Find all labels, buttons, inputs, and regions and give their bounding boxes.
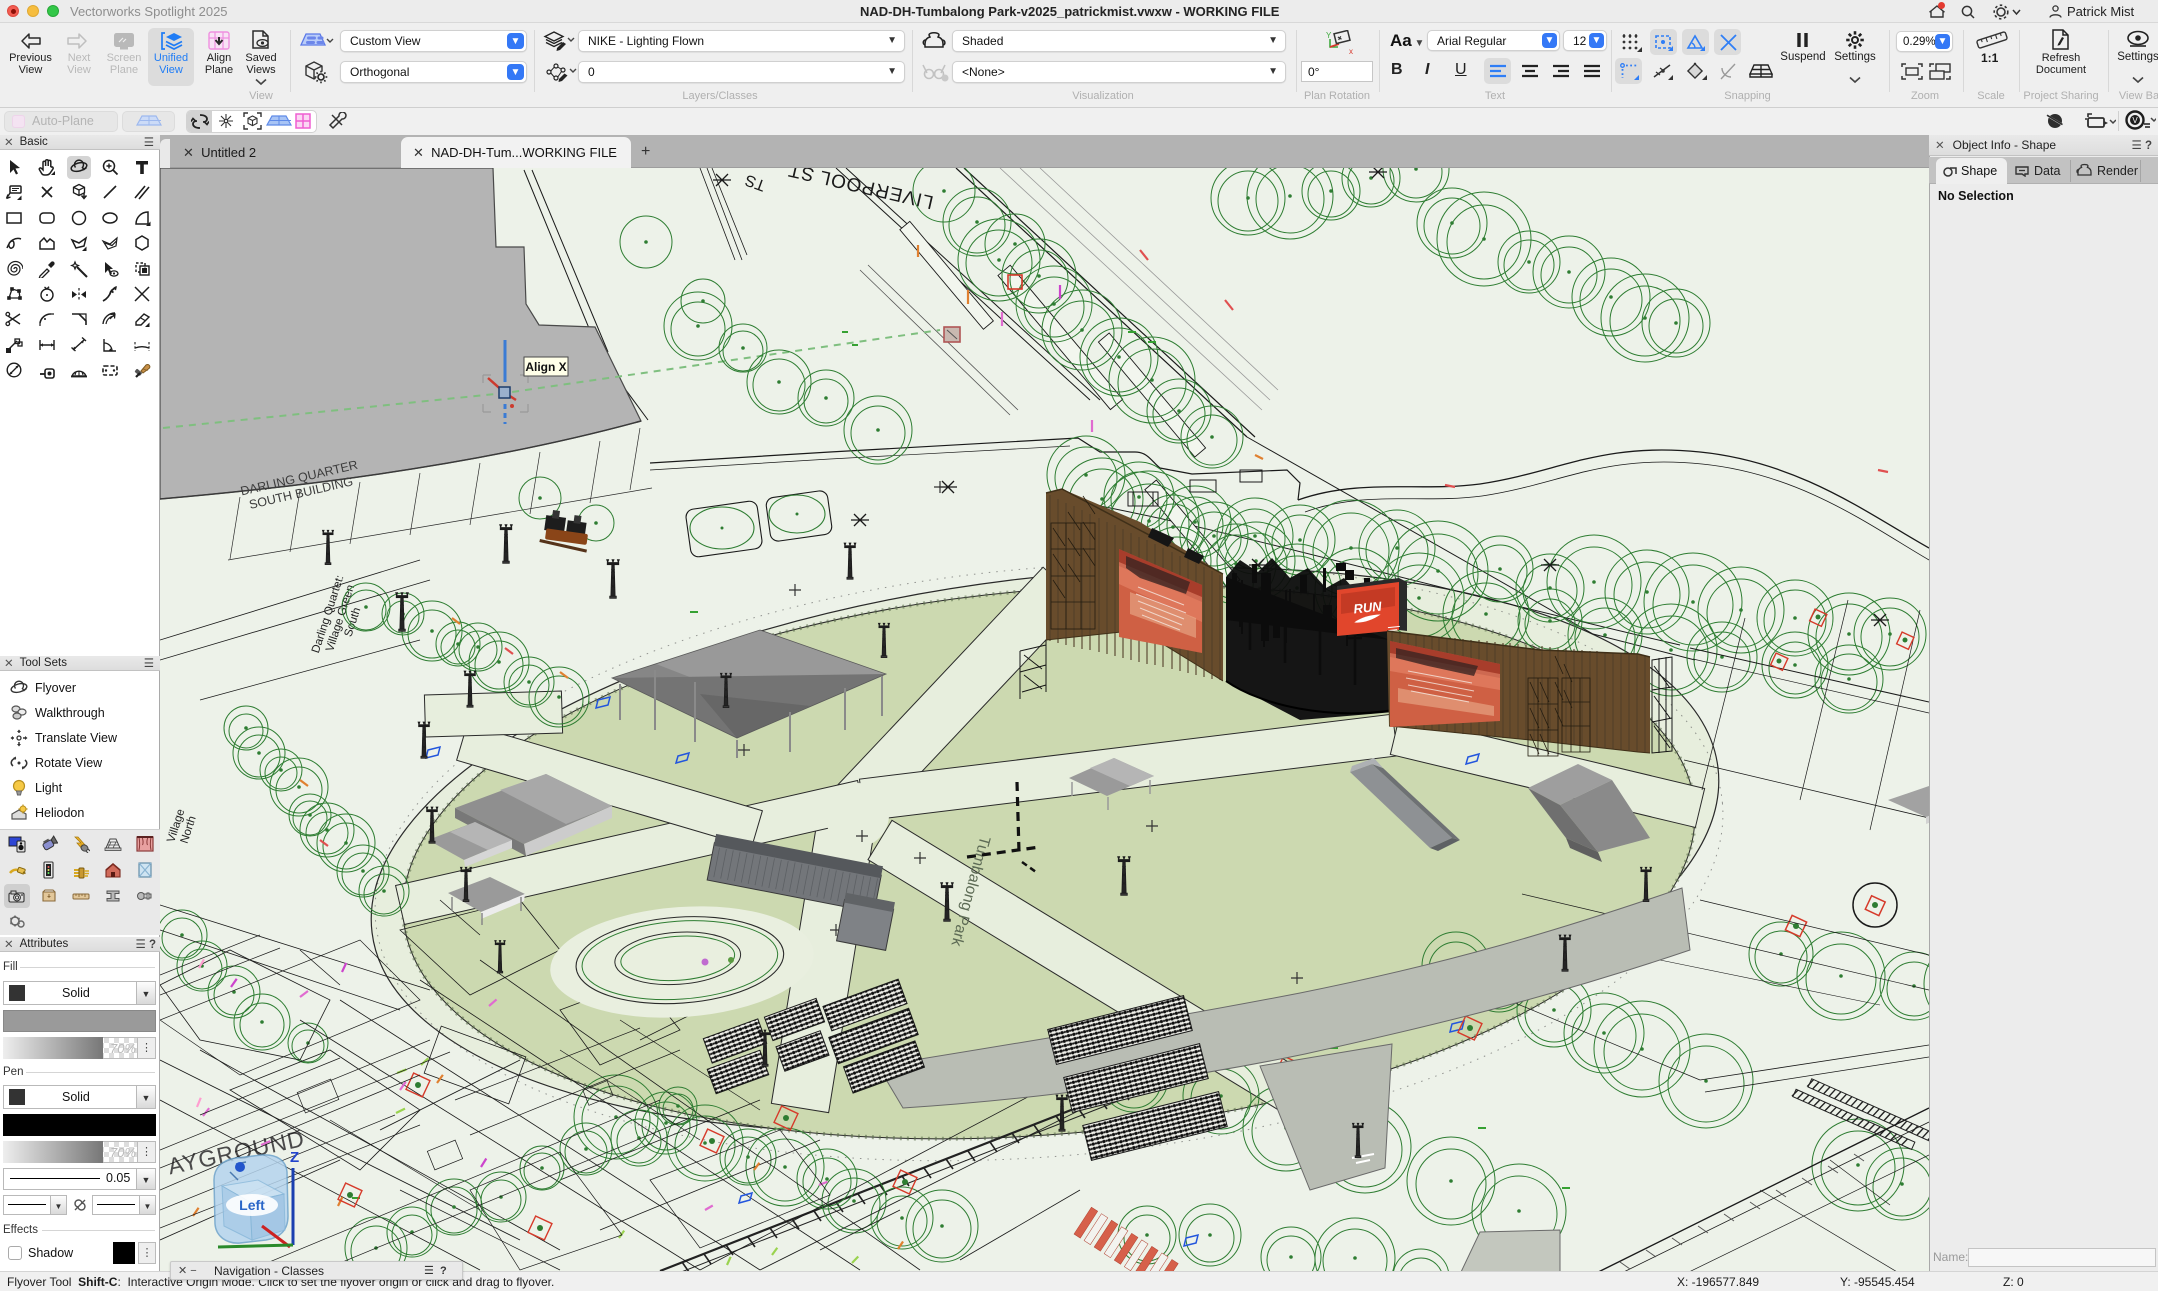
svg-text:Left: Left	[239, 1197, 265, 1213]
svg-text:RUN: RUN	[1353, 599, 1383, 617]
svg-text:Y: Y	[1326, 31, 1332, 40]
svg-text:V: V	[2132, 116, 2138, 125]
svg-text:Align X: Align X	[525, 360, 566, 374]
svg-text:Z: Z	[290, 1149, 299, 1166]
svg-text:x: x	[1349, 47, 1353, 54]
